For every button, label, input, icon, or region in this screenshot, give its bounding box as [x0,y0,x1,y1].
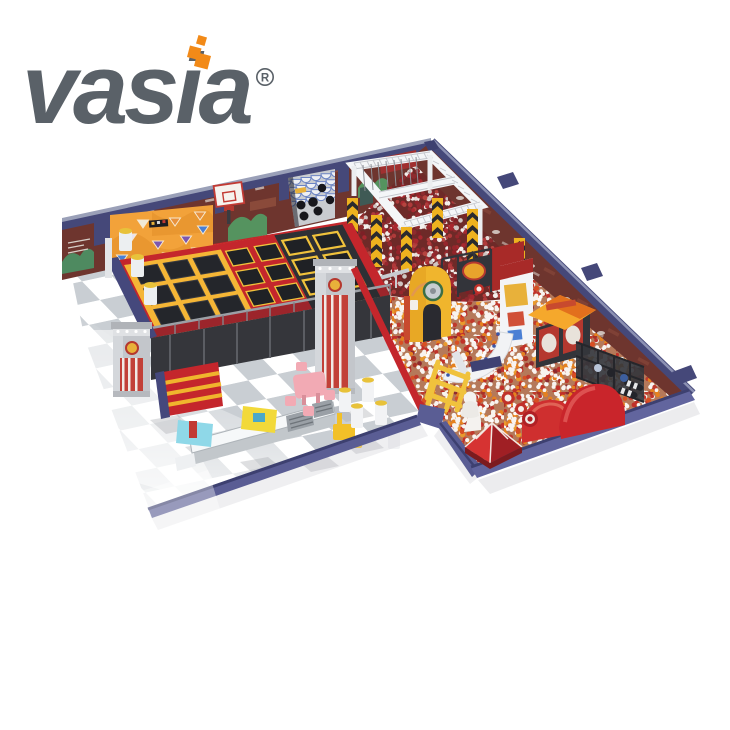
svg-text:vasia: vasia [22,33,252,144]
svg-text:R: R [261,73,270,85]
